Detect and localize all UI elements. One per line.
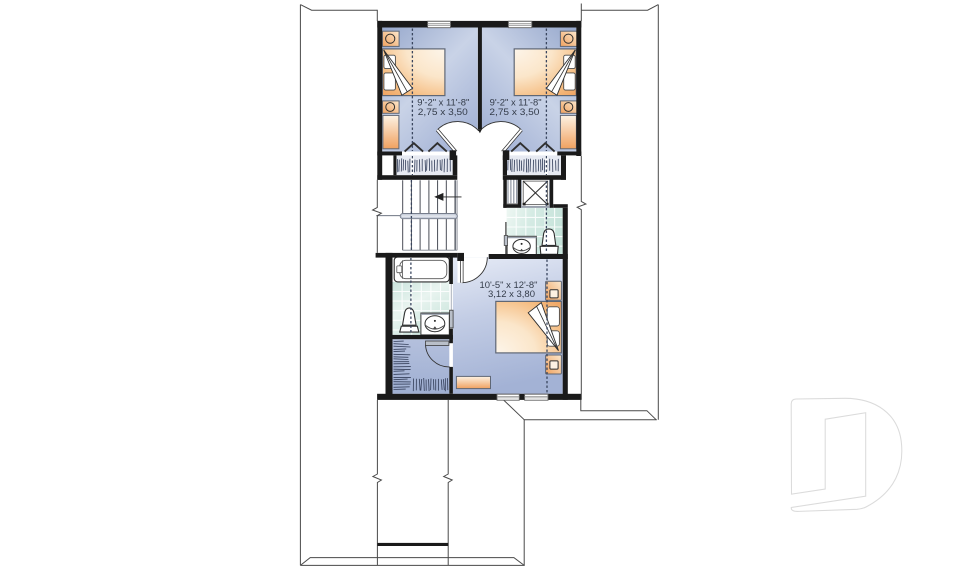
svg-text:2,75 x 3,50: 2,75 x 3,50: [489, 106, 539, 117]
svg-text:2,75 x 3,50: 2,75 x 3,50: [418, 106, 468, 117]
svg-text:3,12 x 3,80: 3,12 x 3,80: [488, 288, 535, 299]
